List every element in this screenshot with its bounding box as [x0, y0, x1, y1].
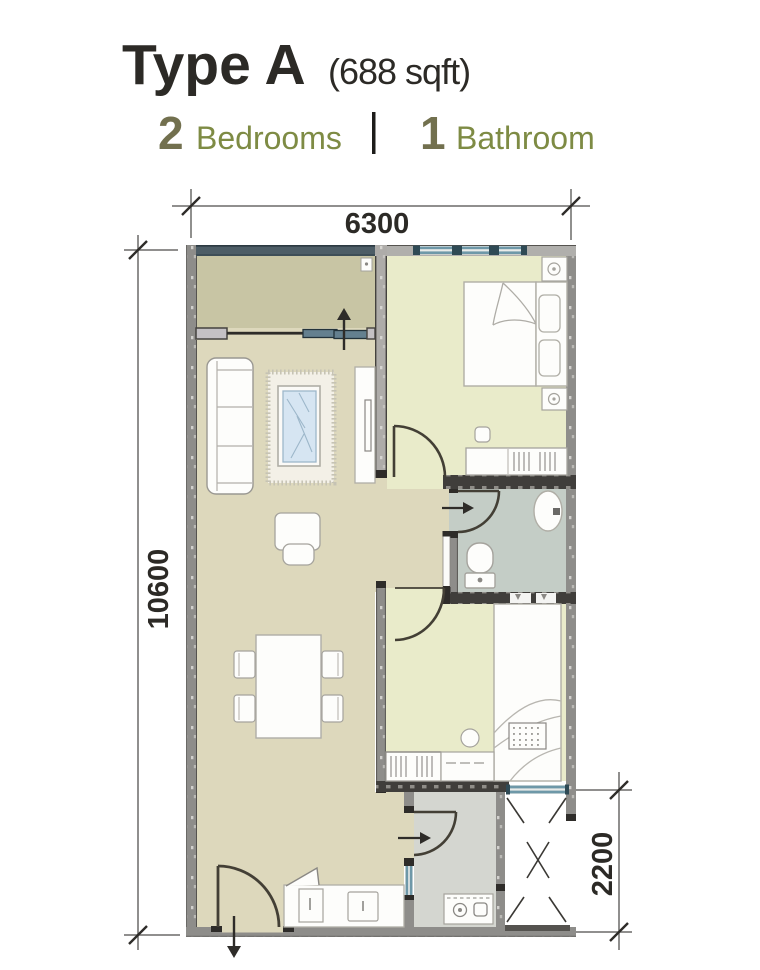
svg-text:2: 2 [158, 107, 184, 159]
svg-text:Bedrooms: Bedrooms [196, 120, 342, 156]
svg-text:6300: 6300 [345, 208, 410, 240]
svg-text:Type A: Type A [122, 33, 306, 97]
svg-text:Bathroom: Bathroom [456, 120, 595, 156]
svg-text:2200: 2200 [587, 832, 619, 897]
svg-text:1: 1 [420, 107, 446, 159]
svg-text:(688 sqft): (688 sqft) [328, 51, 470, 92]
svg-text:10600: 10600 [143, 549, 175, 630]
